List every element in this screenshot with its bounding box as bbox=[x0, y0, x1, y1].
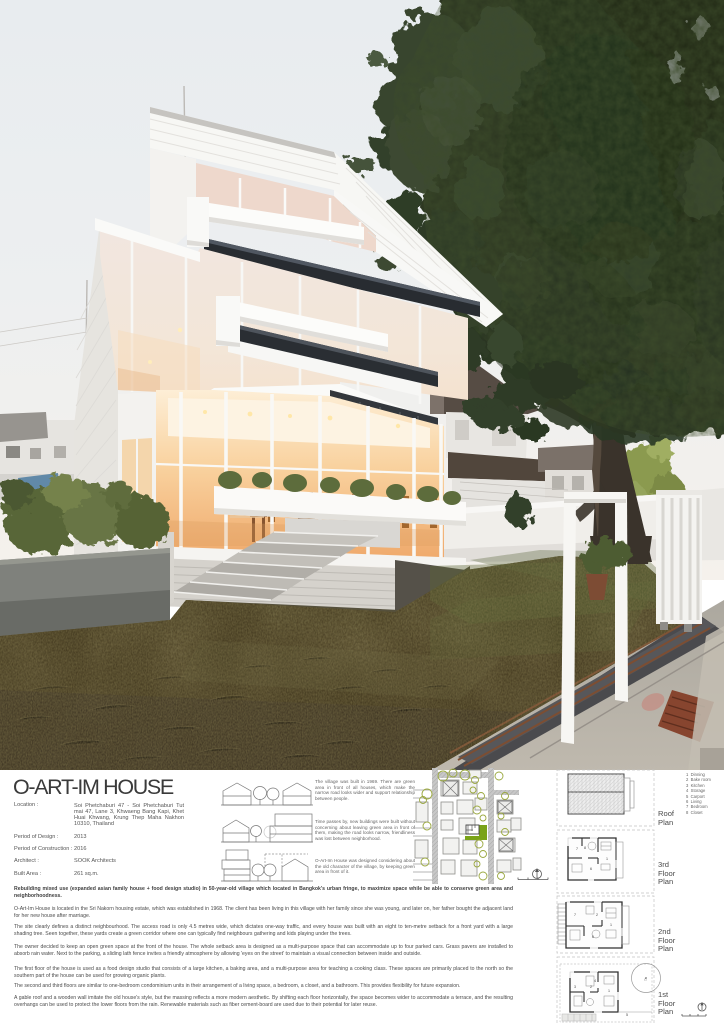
svg-text:5: 5 bbox=[626, 1013, 628, 1017]
svg-text:2: 2 bbox=[590, 985, 592, 989]
svg-text:1: 1 bbox=[610, 923, 612, 927]
svg-text:6: 6 bbox=[592, 935, 594, 939]
svg-text:7: 7 bbox=[574, 913, 576, 917]
svg-text:3: 3 bbox=[574, 985, 576, 989]
svg-text:8: 8 bbox=[584, 846, 586, 850]
svg-text:1: 1 bbox=[608, 989, 610, 993]
svg-text:4: 4 bbox=[594, 979, 596, 983]
svg-text:7: 7 bbox=[576, 847, 578, 851]
svg-text:6: 6 bbox=[590, 867, 592, 871]
svg-text:2: 2 bbox=[596, 913, 598, 917]
svg-text:△: △ bbox=[644, 977, 648, 981]
svg-text:1: 1 bbox=[606, 857, 608, 861]
